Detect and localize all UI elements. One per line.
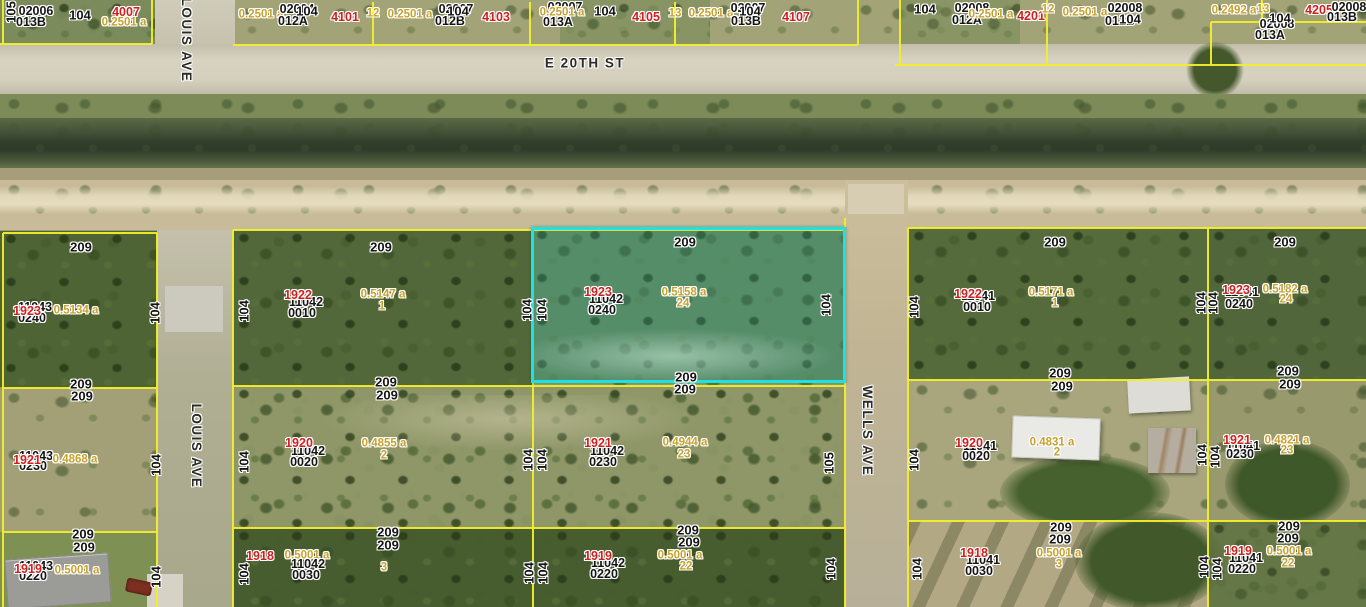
scrub-row2-left — [0, 388, 157, 532]
terrain-top-trees — [0, 0, 160, 46]
woods-row1-right — [908, 228, 1208, 381]
woods-row2-far-right — [1225, 440, 1350, 528]
aerial-parcel-map[interactable]: 10502006013B10440070.2501 aLOUIS AVE0.25… — [0, 0, 1366, 607]
dirt-trail — [0, 186, 1366, 214]
woods-row3-mid — [233, 528, 845, 607]
woods-row1-far-right — [1208, 228, 1366, 381]
woods-row1-mid — [233, 230, 533, 387]
selected-parcel-highlight[interactable] — [531, 227, 846, 383]
house-roof — [4, 552, 111, 607]
driveway — [147, 574, 183, 607]
woods-row3-far-right — [1208, 521, 1366, 607]
road-e-20th-st — [0, 44, 1366, 96]
canal-reeds — [0, 118, 1366, 170]
tree-over-road — [1186, 42, 1244, 98]
mobile-home — [1011, 415, 1100, 460]
canal-north-bank — [0, 94, 1366, 120]
terrain-top-trees — [900, 0, 1020, 46]
shed-white — [1127, 376, 1191, 413]
shed-rust — [1148, 428, 1196, 473]
terrain-top-trees — [560, 0, 710, 46]
sand-row2-mid — [300, 395, 720, 455]
woods-row1-left — [0, 231, 158, 387]
wells-ave-pad — [848, 184, 904, 214]
woods-row3-right — [1075, 512, 1225, 607]
louis-ave-pad — [165, 286, 223, 332]
road-louis-ave-top — [155, 0, 235, 44]
road-wells-ave — [845, 180, 908, 607]
